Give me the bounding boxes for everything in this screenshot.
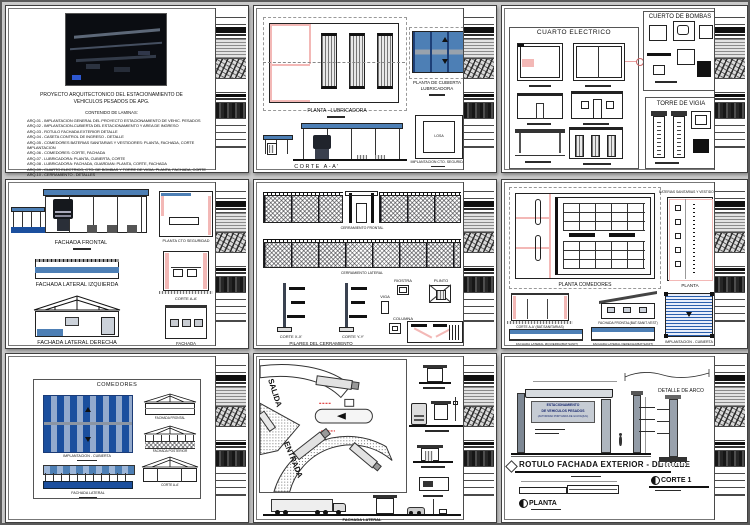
- truck-grill: [414, 415, 424, 417]
- roof-label-1: PLANTA DE CUBIERTA: [402, 81, 472, 86]
- sheet-portada[interactable]: PROYECTO ARQUITECTONICO DEL ESTACIONAMIE…: [5, 5, 249, 173]
- title-block: [714, 182, 745, 346]
- photo-streak: [74, 29, 160, 40]
- greeked-text: [655, 490, 681, 491]
- section-col: [513, 296, 516, 319]
- section-post: [157, 468, 158, 482]
- title-block-cell: [216, 8, 246, 18]
- cto-facade-label: FACHADA: [165, 342, 207, 346]
- title-block-cell: [464, 147, 494, 148]
- canopy-post: [519, 133, 521, 153]
- sheet-comedores-planta[interactable]: PLANTA COMEDORES BATERIAS SANITARIAS Y V…: [501, 179, 748, 349]
- izq-blue-band: [35, 267, 119, 273]
- baterias-walls: [669, 199, 713, 281]
- greeked-text: [583, 163, 611, 165]
- plan-label: PLANTA - LUBRICADORA: [287, 109, 387, 114]
- ground-line: [511, 456, 651, 457]
- fixture: [675, 247, 681, 253]
- title-block-cell: [715, 93, 745, 103]
- title-block-cell: [216, 314, 246, 321]
- sheet-comedores[interactable]: COMEDORES IMPLANTACION - CUBIERTA FACHAD…: [5, 353, 249, 523]
- plan-wall: [516, 217, 549, 219]
- gable-truss: [33, 295, 121, 311]
- greeked-text: [73, 248, 91, 250]
- title-block-cell: [216, 119, 246, 126]
- detail-bar: [433, 324, 447, 327]
- fixture: [675, 205, 681, 211]
- partition: [685, 199, 686, 279]
- section-marker-icon: [651, 476, 660, 485]
- facade-frontal-label: FACHADA FRONTAL: [143, 417, 197, 420]
- corte1-underline: [649, 486, 709, 488]
- title-block-cell: [715, 59, 745, 79]
- title-block-cell: [464, 495, 494, 496]
- title-block-cell: [464, 474, 494, 481]
- section-label: CORTE A-A': [287, 165, 347, 171]
- cto-cabinet: [173, 269, 183, 277]
- lateral-blue-band: [592, 328, 654, 332]
- baterias-title: BATERIAS SANITARIAS Y VESTIDORES: [659, 191, 717, 194]
- title-block-cell: [715, 25, 745, 39]
- dim-line: [533, 381, 617, 382]
- title-block-cell: [216, 126, 246, 133]
- planta-bar: [519, 487, 567, 494]
- title-block-cell: [715, 366, 745, 373]
- elevation-parapet: [517, 93, 563, 96]
- der-ramp: [37, 329, 63, 336]
- title-block-cell: [464, 366, 494, 373]
- elevation-door: [593, 99, 602, 119]
- sheet-fachadas[interactable]: FACHADA FRONTAL FACHADA LATERAL IZQUIERD…: [5, 179, 249, 349]
- title-block-cell: [464, 213, 494, 233]
- riostra-inner: [399, 287, 407, 293]
- title-block-cell: [216, 233, 246, 253]
- greeked-text: [639, 419, 655, 420]
- title-block: [215, 356, 246, 520]
- title-block-cell: [216, 18, 246, 25]
- tower-roof-plan: [693, 139, 709, 153]
- title-block-cell: [464, 441, 494, 451]
- wavy-dim-line: [623, 367, 713, 381]
- cto-facade-window: [182, 319, 191, 327]
- greeked-text: [571, 476, 601, 477]
- bombas-plan: [649, 25, 667, 41]
- fence-panel: [379, 195, 461, 223]
- title-block-cell: [216, 133, 246, 140]
- fence-panel: [263, 242, 461, 268]
- sheet-canvas: CERRAMIENTO FRONTAL CERRAMIENTO LATERAL …: [257, 183, 462, 345]
- roof-label: IMPLANTACION - CUBIERTA: [43, 455, 131, 459]
- title-block-cell: [216, 321, 246, 322]
- sheet-canvas: SALIDA ENTRADA: [257, 357, 462, 519]
- lateral-blue-band: [510, 330, 582, 334]
- title-block-cell: [216, 407, 246, 427]
- lateral-base-band: [43, 481, 133, 489]
- slope-arrow-icon: [85, 407, 91, 412]
- title-block-cell: [715, 147, 745, 148]
- cto-plan-wall: [161, 196, 164, 216]
- title-block-cell: [715, 233, 745, 253]
- title-block-cell: [216, 79, 246, 93]
- title-block-cell: [216, 451, 246, 467]
- title-block-cell: [715, 277, 745, 293]
- title-block-cell: [216, 103, 246, 119]
- title-block-cell: [464, 233, 494, 253]
- viga-label: VIGA: [371, 295, 399, 299]
- tables-grid: [563, 203, 645, 231]
- slope-arrow-icon: [442, 37, 448, 42]
- truck-body: [57, 219, 69, 231]
- sheet-cerramiento[interactable]: CERRAMIENTO FRONTAL CERRAMIENTO LATERAL …: [253, 179, 497, 349]
- section-truck-cab: [313, 135, 331, 149]
- pole-box: [453, 401, 458, 405]
- title-block-cell: [715, 356, 745, 366]
- bat-facade-window: [607, 307, 615, 313]
- title-block-cell: [464, 59, 494, 79]
- truck-front: [411, 403, 427, 425]
- sheet-ingreso[interactable]: SALIDA ENTRADA: [253, 353, 497, 523]
- gate-post: [371, 193, 374, 223]
- rebar-bars: [449, 325, 461, 340]
- contents-list: ARQ-01 - IMPLANTACION GENERAL DEL PROYEC…: [27, 118, 214, 177]
- title-block-cell: [216, 488, 246, 495]
- title-block-cell: [216, 474, 246, 481]
- title-block-cell: [715, 8, 745, 18]
- bat-section: [511, 293, 569, 321]
- arco-base: [659, 457, 687, 462]
- comedores-title: COMEDORES: [33, 383, 201, 389]
- pillar-step: [287, 315, 305, 318]
- cto-plan-counter: [169, 217, 199, 225]
- title-block-cell: [715, 18, 745, 25]
- section-label: CORTE A-A': [143, 484, 197, 487]
- bench: [535, 199, 541, 225]
- ground-line: [511, 453, 651, 455]
- title-block-cell: [464, 407, 494, 427]
- gate-beam: [345, 191, 378, 196]
- cto-section-col: [165, 253, 169, 289]
- title-block-cell: [464, 253, 494, 267]
- truss-icon: [143, 393, 197, 403]
- title-block-cell: [464, 488, 494, 495]
- title-block-cell: [464, 300, 494, 307]
- louver-door: [575, 135, 584, 157]
- title-block-cell: [464, 182, 494, 192]
- rotulo-title: ROTULO FACHADA EXTERIOR - DETALLE: [519, 461, 679, 469]
- booth-hatch: [425, 451, 433, 461]
- corte-y-label: CORTE Y-Y': [329, 335, 377, 339]
- fixture: [675, 219, 681, 225]
- frontal-door: [87, 225, 97, 233]
- title-block-cell: [216, 373, 246, 387]
- gate-post: [349, 193, 352, 223]
- elevation-door: [536, 103, 544, 119]
- elevation-window: [581, 101, 589, 109]
- fence-frontal-label: CERRAMIENTO FRONTAL: [317, 227, 407, 231]
- canopy-post: [559, 133, 561, 153]
- truck-grill: [414, 419, 424, 421]
- truss-icon: [143, 425, 197, 435]
- project-title-line1: PROYECTO ARQUITECTONICO DEL ESTACIONAMIE…: [9, 93, 214, 98]
- title-block-cell: [216, 307, 246, 314]
- greeked-text: [583, 123, 609, 125]
- title-block-cell: [216, 253, 246, 267]
- gate-door: [356, 203, 367, 223]
- service-pit: [321, 33, 337, 89]
- plan-wall: [309, 24, 311, 64]
- cto-cabinet: [187, 269, 197, 277]
- title-block-cell: [715, 427, 745, 441]
- facade-posterior-label: FACHADA POSTERIOR: [143, 450, 197, 453]
- title-block-cell: [464, 18, 494, 25]
- greeked-text: [421, 466, 445, 468]
- plan-wall: [270, 24, 310, 26]
- ground-line: [419, 382, 451, 384]
- greeked-text: [423, 387, 445, 389]
- title-block-cell: [216, 495, 246, 496]
- light-pole: [433, 499, 434, 514]
- detail-bar: [411, 324, 427, 327]
- tower-ladder: [657, 119, 661, 155]
- title-block-cell: [216, 93, 246, 103]
- title-block-cell: [464, 192, 494, 199]
- pillar-footing: [277, 327, 292, 332]
- title-block-cell: [715, 126, 745, 133]
- cto-facade-parapet: [165, 305, 207, 308]
- plan-wall: [270, 100, 310, 102]
- booth-body: [376, 498, 394, 514]
- title-block-cell: [715, 481, 745, 488]
- fence-lateral-label: CERRAMIENTO LATERAL: [317, 272, 407, 276]
- title-block-cell: [464, 119, 494, 126]
- corte1-label: CORTE 1: [661, 477, 711, 484]
- title-block-cell: [715, 253, 745, 267]
- cto-section-col: [203, 253, 207, 289]
- plan-slab: [518, 44, 524, 47]
- pilares-label: PILARES DEL CERRAMIENTO: [271, 342, 371, 347]
- title-block-cell: [464, 103, 494, 119]
- sign-line1: ESTACIONAMIENTO: [531, 404, 595, 407]
- sheet-canvas: FACHADA FRONTAL FACHADA LATERAL IZQUIERD…: [9, 183, 214, 345]
- title-block-cell: [464, 199, 494, 213]
- bat-facade-window: [639, 307, 647, 313]
- section-post: [181, 468, 182, 482]
- columna-core: [392, 326, 398, 331]
- title-block-cell: [715, 314, 745, 321]
- greeked-text: [535, 433, 559, 434]
- plan-wall: [270, 64, 310, 66]
- bombas-pump: [653, 65, 665, 75]
- title-block-cell: [715, 103, 745, 119]
- greeked-text: [655, 81, 677, 83]
- greeked-text: [535, 429, 565, 430]
- title-block-cell: [216, 182, 246, 192]
- cto-plan: [159, 191, 213, 237]
- bombas-elev: [677, 49, 695, 65]
- title-block-cell: [464, 293, 494, 300]
- section-truck-body: [315, 149, 329, 159]
- der-window: [65, 317, 79, 326]
- ground-line: [413, 461, 453, 463]
- title-block-cell: [715, 307, 745, 314]
- section-marker-icon: [519, 499, 528, 508]
- title-block-cell: [464, 8, 494, 18]
- service-pit: [349, 33, 365, 89]
- greeked-text: [423, 495, 443, 497]
- title-block-cell: [464, 481, 494, 488]
- title-block-cell: [715, 373, 745, 387]
- greeked-text: [425, 430, 449, 432]
- losa-label: LOSA: [423, 135, 455, 139]
- baterias-plan-label: PLANTA: [667, 284, 713, 289]
- bat-izq-label: FACHADA LATERAL IZQUIERDA(BAT.SANIT): [505, 343, 589, 346]
- plan-pink-zone: [522, 59, 534, 67]
- dim-line: [521, 481, 617, 482]
- facade-body: [145, 403, 195, 415]
- louver-door: [591, 135, 600, 157]
- greeked-text: [639, 407, 655, 408]
- title-block-cell: [464, 39, 494, 59]
- bombas-tank: [677, 25, 689, 35]
- slab: [609, 233, 635, 237]
- greeked-text: [655, 162, 679, 164]
- fachada-lateral-label: FACHADA LATERAL: [312, 518, 412, 522]
- sheet-canvas: PLANTA COMEDORES BATERIAS SANITARIAS Y V…: [505, 183, 713, 345]
- pillar-step: [289, 287, 305, 290]
- side-canopy-base: [11, 227, 45, 233]
- frontal-door: [127, 225, 137, 233]
- cto-facade-window: [170, 319, 179, 327]
- sheet-canvas: ESTACIONAMIENTO DE VEHICULOS PESADOS (AU…: [505, 357, 713, 519]
- title-block-cell: [216, 356, 246, 366]
- truck-grill: [55, 215, 71, 217]
- title-block-cell: [715, 140, 745, 147]
- plinto-label: PLINTO: [423, 279, 459, 283]
- pylon-detail: [633, 395, 641, 453]
- title-block-cell: [464, 267, 494, 277]
- greeked-text: [327, 116, 345, 118]
- sign-pylon-right: [601, 399, 611, 453]
- planta-label: PLANTA: [529, 500, 573, 507]
- title-block-cell: [464, 93, 494, 103]
- bombas-dark-detail: [697, 61, 711, 77]
- greeked-text: [531, 509, 561, 510]
- pillar-step: [351, 287, 367, 290]
- roof-label-2: LUBRICADORA: [402, 87, 472, 92]
- ground-line: [263, 514, 461, 516]
- louver-door: [607, 135, 616, 157]
- sheet-rotulo[interactable]: ESTACIONAMIENTO DE VEHICULOS PESADOS (AU…: [501, 353, 748, 523]
- title-block-cell: [464, 373, 494, 387]
- title-block: [215, 8, 246, 170]
- greeked-text: [639, 431, 655, 432]
- tower-ladder: [677, 119, 681, 155]
- lateral-posts: [45, 473, 131, 481]
- title-block-cell: [464, 79, 494, 93]
- izq-eave: [35, 259, 119, 262]
- plan-wall: [270, 24, 272, 102]
- title-block-cell: [715, 407, 745, 427]
- greeked-text: [79, 497, 97, 498]
- title-block: [463, 356, 494, 520]
- cto-facade-window: [194, 319, 203, 327]
- title-block-cell: [715, 451, 745, 467]
- title-block-cell: [715, 467, 745, 474]
- bombas-slab: [647, 53, 671, 56]
- frontal-door: [107, 225, 117, 233]
- title-block-cell: [715, 321, 745, 322]
- comedores-plan-label: PLANTA COMEDORES: [535, 283, 635, 288]
- leader-tick: [657, 433, 669, 434]
- frontal-roof: [43, 189, 149, 196]
- torre-vigia-title: TORRE DE VIGIA: [645, 101, 717, 107]
- photo-streak: [76, 54, 156, 61]
- title-block-cell: [715, 182, 745, 192]
- title-block-cell: [715, 495, 745, 496]
- person-body: [619, 436, 622, 446]
- pillar-shaft: [283, 283, 286, 327]
- cto-section-label: CORTE A-A': [161, 297, 211, 301]
- elevation-parapet: [569, 127, 623, 130]
- sheet-canvas: COMEDORES IMPLANTACION - CUBIERTA FACHAD…: [9, 357, 214, 519]
- title-block: [463, 8, 494, 170]
- greeked-text: [529, 85, 551, 87]
- bombas-plan: [699, 25, 713, 39]
- greeked-text: [525, 161, 551, 163]
- sheet-cuartos[interactable]: CUARTO ELECTRICO: [501, 5, 748, 173]
- slope-arrow-icon: [442, 59, 448, 64]
- title-block-cell: [216, 277, 246, 293]
- booth-body: [427, 368, 443, 382]
- sign-line2: DE VEHICULOS PESADOS: [531, 410, 595, 413]
- corner-tick: [664, 292, 668, 296]
- gable-icon: [141, 456, 199, 468]
- title-block-cell: [216, 192, 246, 199]
- plan-general-inner: [576, 46, 622, 78]
- fence-panel: [263, 195, 343, 223]
- photo-blue-truck: [72, 75, 81, 80]
- title-block-cell: [216, 25, 246, 39]
- viga-detail: [381, 301, 389, 314]
- photo-truck: [86, 64, 100, 69]
- sheet-lubricadora[interactable]: PLANTA - LUBRICADORA PLANTA DE CUBIERTA …: [253, 5, 497, 173]
- greeked-text: [77, 460, 97, 461]
- plinto-core: [436, 290, 446, 300]
- title-block-cell: [464, 314, 494, 321]
- arco-ground-hatch: [659, 463, 687, 466]
- title-block-cell: [216, 147, 246, 148]
- ground-hatch: [507, 321, 573, 324]
- title-block-cell: [464, 356, 494, 366]
- pillar-step: [291, 301, 305, 304]
- title-block-cell: [464, 387, 494, 407]
- fixture: [675, 261, 681, 267]
- corner-tick: [664, 334, 668, 338]
- pillar-step: [349, 315, 367, 318]
- title-block-cell: [715, 267, 745, 277]
- plan-wall: [549, 194, 551, 278]
- title-block-cell: [715, 192, 745, 199]
- frontal-label: FACHADA FRONTAL: [31, 241, 131, 247]
- der-door: [101, 317, 115, 335]
- cto-plan-wall: [208, 196, 211, 235]
- lateral-label: FACHADA LATERAL: [43, 492, 133, 496]
- salida-label: SALIDA: [266, 378, 284, 409]
- sign-line3: (AUTORIDAD PORTUARIA DE GUAYAQUIL): [531, 416, 595, 419]
- photo-truck: [114, 67, 130, 72]
- bat-facade-window: [623, 307, 631, 313]
- ground-line: [409, 425, 465, 427]
